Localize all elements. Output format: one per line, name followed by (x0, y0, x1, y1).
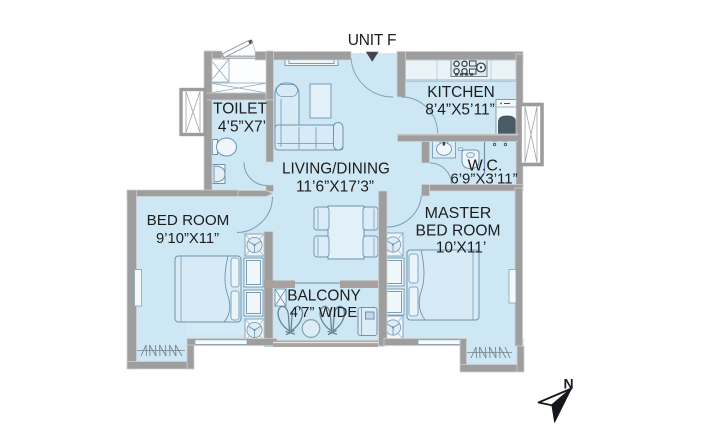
svg-text:11’6”X17’3”: 11’6”X17’3” (296, 179, 374, 196)
svg-text:KITCHEN: KITCHEN (427, 84, 495, 101)
svg-text:BALCONY: BALCONY (287, 288, 361, 305)
svg-text:9’10”X11”: 9’10”X11” (156, 231, 219, 247)
svg-text:BED ROOM: BED ROOM (416, 223, 501, 240)
svg-text:4’7” WIDE: 4’7” WIDE (290, 305, 358, 321)
svg-text:LIVING/DINING: LIVING/DINING (282, 161, 390, 178)
svg-text:4’5”X7’: 4’5”X7’ (218, 119, 266, 136)
svg-text:6’9”X3’11”: 6’9”X3’11” (450, 171, 517, 188)
svg-text:BED ROOM: BED ROOM (147, 212, 230, 229)
svg-text:UNIT F: UNIT F (348, 32, 396, 49)
svg-text:MASTER: MASTER (425, 205, 492, 222)
svg-text:8’4”X5’11”: 8’4”X5’11” (425, 102, 495, 119)
svg-text:10’X11’: 10’X11’ (436, 240, 487, 257)
svg-text:TOILET: TOILET (213, 101, 268, 118)
